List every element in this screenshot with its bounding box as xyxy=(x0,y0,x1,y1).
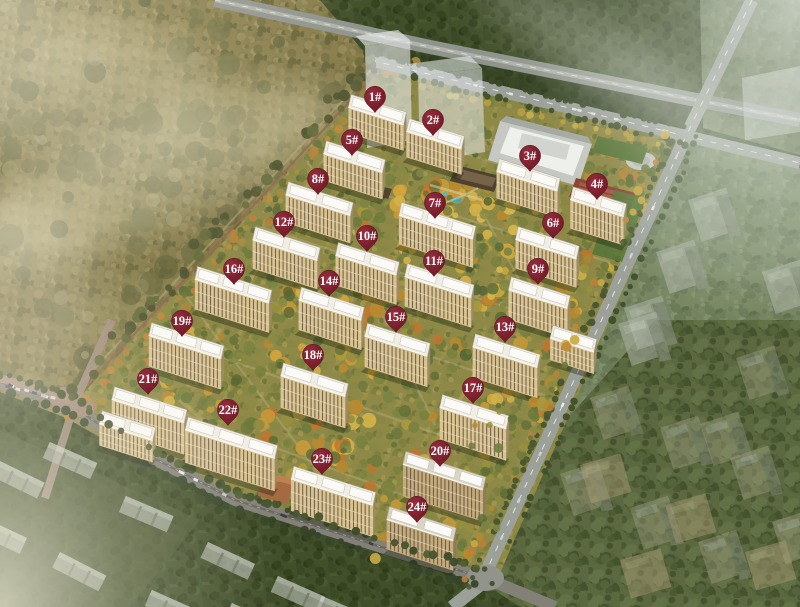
svg-text:24#: 24# xyxy=(408,500,428,514)
svg-text:15#: 15# xyxy=(387,310,407,324)
svg-text:19#: 19# xyxy=(173,314,193,328)
svg-text:16#: 16# xyxy=(225,262,245,276)
svg-text:14#: 14# xyxy=(320,274,340,288)
svg-text:3#: 3# xyxy=(524,149,537,163)
svg-text:1#: 1# xyxy=(369,90,382,104)
svg-text:11#: 11# xyxy=(425,254,444,268)
svg-text:8#: 8# xyxy=(312,172,325,186)
svg-text:10#: 10# xyxy=(358,229,378,243)
svg-text:12#: 12# xyxy=(275,215,295,229)
svg-text:9#: 9# xyxy=(532,262,545,276)
svg-text:21#: 21# xyxy=(139,372,159,386)
svg-text:22#: 22# xyxy=(219,403,239,417)
svg-text:13#: 13# xyxy=(496,320,516,334)
svg-text:7#: 7# xyxy=(429,196,442,210)
svg-text:4#: 4# xyxy=(591,177,604,191)
svg-text:5#: 5# xyxy=(346,133,359,147)
svg-text:17#: 17# xyxy=(464,381,484,395)
svg-text:20#: 20# xyxy=(431,444,451,458)
svg-text:23#: 23# xyxy=(313,452,333,466)
svg-text:18#: 18# xyxy=(304,348,324,362)
svg-text:2#: 2# xyxy=(427,113,440,127)
svg-text:6#: 6# xyxy=(547,216,560,230)
